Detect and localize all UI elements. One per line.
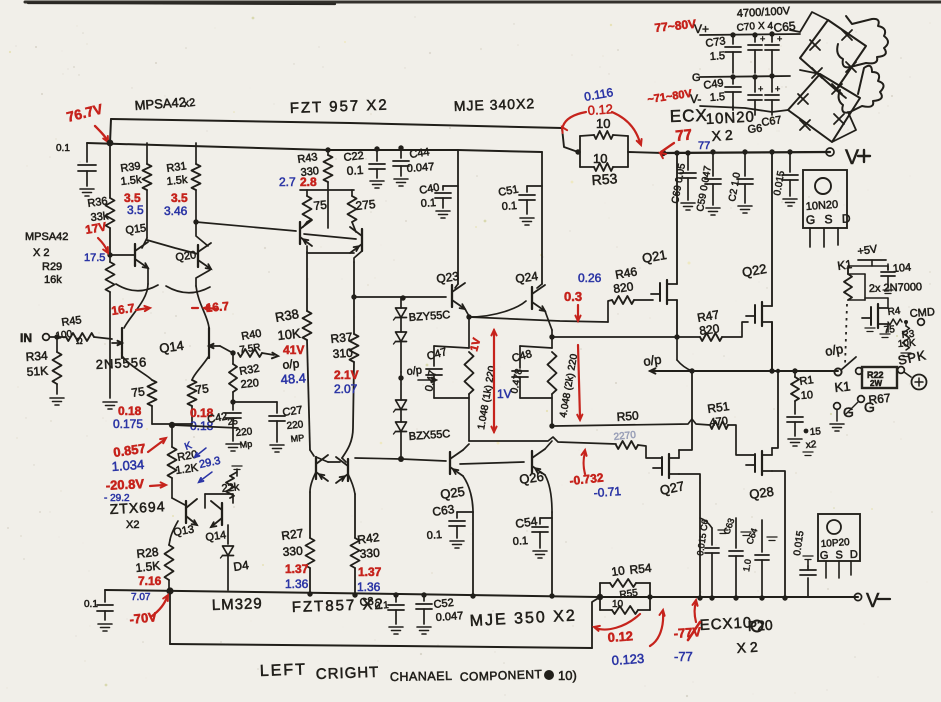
svg-text:1.5k: 1.5k bbox=[166, 174, 188, 188]
svg-text:4.048 (2k) 220: 4.048 (2k) 220 bbox=[558, 353, 580, 419]
svg-text:15: 15 bbox=[809, 426, 821, 438]
svg-text:R27: R27 bbox=[280, 526, 304, 543]
svg-text:220: 220 bbox=[235, 426, 253, 439]
svg-text:R31: R31 bbox=[166, 160, 188, 175]
svg-text:R37: R37 bbox=[330, 330, 354, 346]
svg-text:G6: G6 bbox=[747, 123, 763, 136]
svg-text:Q23: Q23 bbox=[435, 269, 460, 286]
svg-text:10: 10 bbox=[610, 563, 625, 579]
svg-text:K1: K1 bbox=[834, 378, 851, 395]
svg-text:Q25: Q25 bbox=[439, 484, 465, 502]
svg-text:0.1: 0.1 bbox=[374, 600, 389, 612]
svg-text:C49: C49 bbox=[703, 77, 725, 92]
svg-text:0.18: 0.18 bbox=[118, 404, 142, 418]
svg-text:LEFT: LEFT bbox=[260, 661, 308, 680]
svg-text:ECX: ECX bbox=[669, 106, 708, 126]
svg-text:0.1: 0.1 bbox=[501, 200, 517, 213]
svg-text:C42: C42 bbox=[206, 411, 228, 426]
svg-text:820: 820 bbox=[612, 279, 634, 296]
svg-text:+5V: +5V bbox=[857, 243, 879, 258]
svg-text:4700/100V: 4700/100V bbox=[737, 5, 791, 20]
svg-text:LM329: LM329 bbox=[212, 595, 263, 614]
svg-text:CMD: CMD bbox=[909, 306, 935, 320]
svg-text:Q15: Q15 bbox=[125, 222, 147, 237]
svg-text:BZY55C: BZY55C bbox=[408, 309, 450, 324]
svg-text:C59 0.047: C59 0.047 bbox=[695, 165, 714, 213]
svg-text:G S D: G S D bbox=[820, 549, 860, 562]
svg-text:220: 220 bbox=[286, 419, 304, 432]
svg-text:10: 10 bbox=[800, 389, 813, 402]
svg-text:Q14: Q14 bbox=[205, 529, 227, 544]
svg-text:~71~80V: ~71~80V bbox=[647, 88, 694, 106]
svg-text:310: 310 bbox=[332, 346, 353, 361]
svg-text:K1: K1 bbox=[836, 257, 853, 273]
svg-text:0.047: 0.047 bbox=[406, 161, 434, 175]
svg-text:ZTX694: ZTX694 bbox=[109, 498, 166, 517]
svg-text:C73: C73 bbox=[705, 35, 727, 50]
svg-text:Q24: Q24 bbox=[514, 269, 539, 286]
svg-text:R43: R43 bbox=[297, 151, 319, 166]
svg-text:V: V bbox=[866, 590, 880, 612]
svg-text:C47: C47 bbox=[426, 346, 449, 363]
svg-text:CHANAEL: CHANAEL bbox=[390, 669, 453, 684]
svg-text:75: 75 bbox=[194, 381, 209, 397]
svg-text:10: 10 bbox=[612, 599, 624, 610]
svg-text:2N5556: 2N5556 bbox=[95, 354, 147, 372]
svg-text:X 2: X 2 bbox=[736, 639, 758, 656]
svg-text:3.5: 3.5 bbox=[171, 191, 188, 205]
svg-text:1.37: 1.37 bbox=[285, 562, 309, 576]
svg-text:C44: C44 bbox=[409, 146, 431, 161]
svg-text:CRIGHT: CRIGHT bbox=[316, 664, 380, 683]
svg-text:C65: C65 bbox=[773, 19, 797, 35]
svg-text:1.36: 1.36 bbox=[285, 577, 309, 591]
svg-text:x2: x2 bbox=[805, 439, 817, 451]
svg-text:R34: R34 bbox=[25, 348, 48, 364]
svg-text:Q14: Q14 bbox=[158, 338, 184, 356]
svg-text:0.1: 0.1 bbox=[84, 599, 98, 610]
svg-text:0.047: 0.047 bbox=[435, 610, 463, 624]
svg-text:C2 1.0: C2 1.0 bbox=[727, 171, 743, 202]
svg-text:29.3: 29.3 bbox=[198, 455, 221, 471]
svg-text:1.5K: 1.5K bbox=[135, 558, 161, 575]
svg-text:0.123: 0.123 bbox=[611, 651, 645, 668]
svg-text:10N20: 10N20 bbox=[805, 199, 838, 213]
svg-text:1.5: 1.5 bbox=[709, 91, 725, 104]
svg-text:IN: IN bbox=[20, 331, 32, 345]
svg-text:104: 104 bbox=[892, 262, 911, 275]
svg-text:1.0: 1.0 bbox=[741, 558, 753, 572]
svg-text:R36: R36 bbox=[87, 195, 109, 210]
svg-text:C8: C8 bbox=[359, 596, 374, 609]
svg-text:2.07: 2.07 bbox=[334, 382, 358, 396]
svg-text:3.5: 3.5 bbox=[127, 203, 144, 217]
svg-text:220: 220 bbox=[240, 377, 260, 391]
svg-text:C63: C63 bbox=[431, 502, 455, 519]
svg-text:1.2K: 1.2K bbox=[175, 462, 200, 477]
svg-text:R39: R39 bbox=[120, 160, 142, 175]
svg-text:R38: R38 bbox=[274, 306, 300, 325]
svg-text:0.015: 0.015 bbox=[772, 170, 787, 197]
svg-text:C67: C67 bbox=[761, 114, 783, 129]
svg-text:10: 10 bbox=[596, 116, 610, 131]
svg-text:2.8: 2.8 bbox=[300, 175, 317, 189]
svg-text:ECX10: ECX10 bbox=[699, 614, 752, 634]
svg-text:-77V: -77V bbox=[673, 624, 702, 641]
svg-text:2270: 2270 bbox=[613, 430, 637, 443]
svg-text:G S D: G S D bbox=[806, 211, 854, 227]
svg-text:1V: 1V bbox=[468, 336, 483, 353]
svg-text:17V: 17V bbox=[84, 219, 107, 236]
svg-text:75: 75 bbox=[130, 384, 145, 400]
svg-text:-77: -77 bbox=[674, 649, 693, 664]
svg-text:R29: R29 bbox=[42, 261, 62, 273]
svg-text:o/p: o/p bbox=[282, 356, 300, 372]
svg-text:10: 10 bbox=[593, 151, 607, 166]
svg-text:77: 77 bbox=[698, 140, 710, 152]
svg-text:o/p: o/p bbox=[406, 364, 422, 378]
svg-text:10K: 10K bbox=[277, 326, 302, 343]
svg-text:Q21: Q21 bbox=[641, 247, 668, 266]
svg-text:BZX55C: BZX55C bbox=[408, 428, 450, 443]
svg-text:77: 77 bbox=[675, 126, 693, 145]
svg-text:R50: R50 bbox=[616, 408, 639, 424]
svg-text:75: 75 bbox=[313, 198, 328, 213]
svg-text:275: 275 bbox=[355, 197, 377, 213]
svg-text:10P20: 10P20 bbox=[820, 537, 850, 550]
svg-text:1.36: 1.36 bbox=[357, 580, 381, 594]
svg-text:7.16: 7.16 bbox=[138, 574, 162, 588]
svg-text:C52: C52 bbox=[433, 597, 454, 611]
svg-text:G: G bbox=[692, 72, 701, 84]
svg-text:3.46: 3.46 bbox=[164, 204, 188, 218]
svg-text:R40: R40 bbox=[240, 328, 262, 343]
svg-text:x2: x2 bbox=[183, 97, 196, 110]
svg-text:0.12: 0.12 bbox=[587, 101, 613, 118]
svg-text:0.47: 0.47 bbox=[423, 369, 439, 392]
svg-text:o/p: o/p bbox=[824, 341, 844, 359]
svg-text:C48: C48 bbox=[511, 348, 534, 365]
svg-text:41V: 41V bbox=[283, 343, 304, 357]
svg-text:330: 330 bbox=[359, 546, 380, 561]
svg-text:0.12: 0.12 bbox=[607, 628, 633, 645]
svg-text:-20.8V: -20.8V bbox=[105, 476, 144, 493]
svg-text:SPK: SPK bbox=[897, 347, 929, 368]
svg-text:+: + bbox=[775, 84, 780, 94]
svg-text:77~80V: 77~80V bbox=[654, 17, 697, 35]
svg-text:R32: R32 bbox=[238, 363, 260, 378]
svg-text:C51: C51 bbox=[497, 184, 519, 199]
svg-text:V-: V- bbox=[690, 92, 701, 106]
svg-text:R1: R1 bbox=[799, 374, 815, 388]
svg-text:X2: X2 bbox=[126, 519, 139, 531]
svg-text:D4: D4 bbox=[232, 558, 249, 574]
svg-text:10K: 10K bbox=[897, 338, 916, 350]
svg-text:MJE 350 X2: MJE 350 X2 bbox=[469, 607, 577, 630]
svg-text:48.4: 48.4 bbox=[280, 370, 306, 387]
svg-text:C22: C22 bbox=[343, 150, 364, 164]
svg-text:820: 820 bbox=[698, 321, 720, 338]
svg-text:0.1: 0.1 bbox=[56, 143, 70, 154]
svg-text:C69 0.05: C69 0.05 bbox=[670, 162, 688, 204]
svg-text:76.7V: 76.7V bbox=[65, 100, 105, 125]
svg-text:C70: C70 bbox=[736, 21, 756, 34]
svg-text:2.7: 2.7 bbox=[279, 175, 296, 189]
svg-text:X 2: X 2 bbox=[33, 247, 50, 259]
svg-text:7.07: 7.07 bbox=[131, 592, 151, 603]
svg-text:Mp: Mp bbox=[239, 439, 252, 450]
svg-text:2x 2N7000: 2x 2N7000 bbox=[869, 281, 923, 295]
svg-text:0.015: 0.015 bbox=[792, 530, 806, 557]
svg-text:X 4: X 4 bbox=[758, 21, 773, 32]
svg-text:+: + bbox=[777, 34, 782, 44]
svg-text:0.3: 0.3 bbox=[564, 289, 582, 304]
svg-text:R4: R4 bbox=[887, 306, 901, 318]
svg-text:2.1V: 2.1V bbox=[334, 368, 359, 382]
svg-text:0.1: 0.1 bbox=[512, 535, 528, 548]
svg-text:25: 25 bbox=[227, 416, 238, 427]
svg-text:R42: R42 bbox=[356, 530, 380, 547]
svg-text:16k: 16k bbox=[44, 274, 62, 286]
svg-text:MJE 340X2: MJE 340X2 bbox=[454, 95, 536, 114]
svg-text:MPSA42: MPSA42 bbox=[25, 231, 68, 243]
svg-text:1.37: 1.37 bbox=[358, 565, 382, 579]
svg-text:1.5: 1.5 bbox=[709, 50, 725, 63]
svg-text:MP: MP bbox=[290, 433, 304, 444]
svg-text:Q28: Q28 bbox=[748, 484, 774, 502]
svg-text:R53: R53 bbox=[591, 170, 618, 188]
svg-text:Q27: Q27 bbox=[659, 478, 686, 498]
svg-text:Q22: Q22 bbox=[741, 261, 768, 280]
svg-text:330: 330 bbox=[282, 544, 303, 559]
svg-text:C63: C63 bbox=[721, 517, 736, 536]
svg-text:o/p: o/p bbox=[642, 352, 662, 369]
svg-text:Ω: Ω bbox=[76, 336, 83, 346]
svg-text:0.1: 0.1 bbox=[426, 529, 442, 542]
svg-text:0.26: 0.26 bbox=[578, 271, 602, 285]
svg-text:0.1: 0.1 bbox=[420, 197, 436, 210]
svg-text:2W: 2W bbox=[870, 379, 882, 388]
svg-text:10): 10) bbox=[558, 668, 577, 683]
svg-text:1.034: 1.034 bbox=[111, 457, 145, 474]
svg-text:V+: V+ bbox=[694, 22, 709, 36]
svg-text:1.5k: 1.5k bbox=[120, 174, 142, 188]
svg-text:0.015 C6: 0.015 C6 bbox=[695, 519, 710, 557]
svg-text:COMPONENT: COMPONENT bbox=[460, 667, 543, 684]
svg-text:FZT 957 X2: FZT 957 X2 bbox=[290, 97, 389, 117]
svg-text:-0.71: -0.71 bbox=[593, 484, 622, 500]
svg-text:22k: 22k bbox=[221, 481, 240, 495]
svg-text:-70V: -70V bbox=[129, 609, 158, 627]
svg-text:C27: C27 bbox=[282, 404, 304, 419]
svg-text:MPSA42: MPSA42 bbox=[134, 94, 186, 113]
svg-text:X 2: X 2 bbox=[711, 127, 733, 144]
svg-text:C40: C40 bbox=[418, 182, 440, 197]
svg-text:+: + bbox=[760, 34, 765, 44]
svg-text:C64: C64 bbox=[744, 527, 759, 546]
svg-text:G: G bbox=[864, 399, 875, 415]
svg-text:17.5: 17.5 bbox=[84, 252, 105, 264]
svg-text:470: 470 bbox=[709, 415, 729, 429]
svg-text:16.7: 16.7 bbox=[205, 299, 230, 315]
svg-text:R54: R54 bbox=[629, 561, 653, 577]
svg-text:V: V bbox=[845, 146, 859, 169]
svg-text:C54: C54 bbox=[514, 514, 538, 531]
svg-text:0.1: 0.1 bbox=[346, 163, 364, 178]
svg-text:R51: R51 bbox=[706, 399, 730, 416]
svg-text:0.175: 0.175 bbox=[113, 417, 143, 431]
svg-text:+: + bbox=[758, 84, 763, 94]
svg-text:R45: R45 bbox=[61, 314, 83, 329]
svg-text:75: 75 bbox=[883, 324, 895, 336]
svg-text:51K: 51K bbox=[26, 364, 48, 379]
